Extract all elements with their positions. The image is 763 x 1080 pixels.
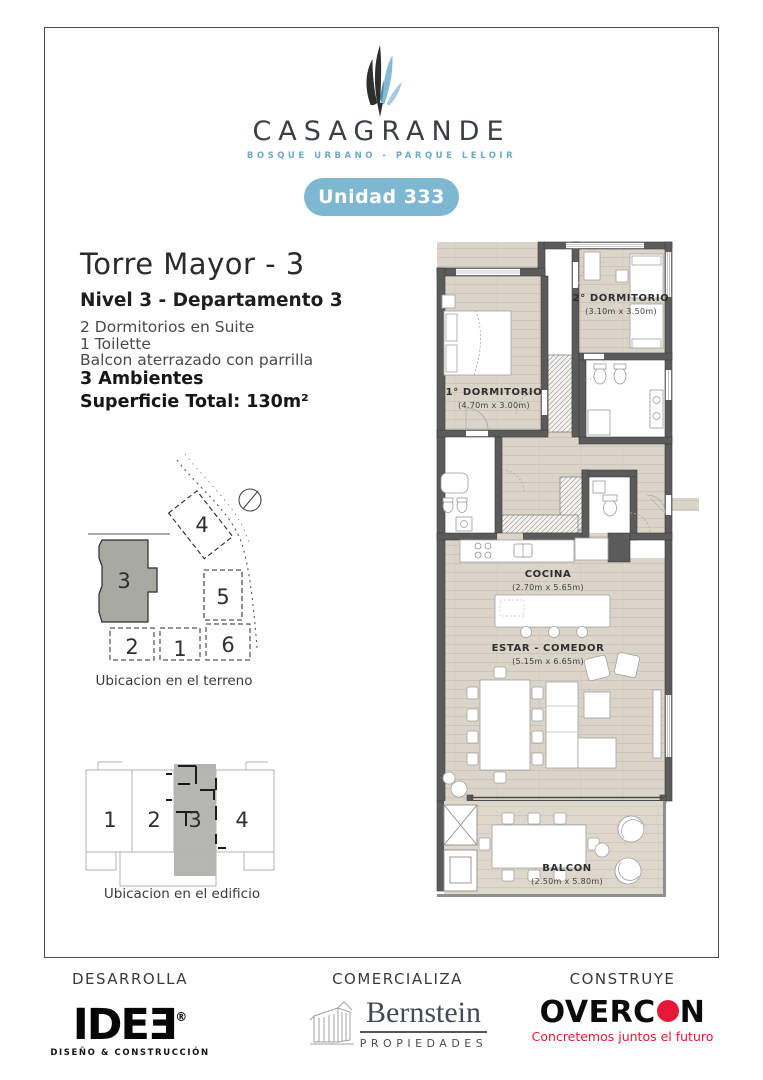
footer-role: CONSTRUYE bbox=[515, 970, 730, 988]
feature-item: 1 Toilette bbox=[80, 336, 313, 353]
building-plan-caption: Ubicacion en el edificio bbox=[104, 886, 260, 902]
building-number: 1 bbox=[173, 637, 186, 661]
room-dims: (4.70m x 3.00m) bbox=[458, 401, 530, 410]
brand-name: CASAGRANDE bbox=[0, 116, 763, 147]
unit-number: 1 bbox=[103, 808, 116, 832]
lounge-chair bbox=[618, 816, 644, 842]
ambientes-label: 3 Ambientes bbox=[80, 369, 204, 389]
dining-table bbox=[480, 680, 530, 770]
page-title: Torre Mayor - 3 bbox=[80, 247, 305, 281]
footer-builder: CONSTRUYE OVERCN Concretemos juntos el f… bbox=[515, 970, 730, 1044]
room-dims: (5.15m x 6.65m) bbox=[512, 657, 584, 666]
unit-number-highlighted: 3 bbox=[188, 808, 201, 832]
room-label: 1° DORMITORIO bbox=[446, 387, 543, 398]
building-number: 3 bbox=[117, 569, 130, 593]
casagrande-tree-logo-icon bbox=[356, 44, 406, 118]
footer-role: DESARROLLA bbox=[40, 970, 220, 988]
idee-logo: IDEƎ® bbox=[40, 997, 220, 1045]
building-plan: 1 2 3 4 Ubicacion en el edificio bbox=[78, 752, 290, 904]
room-label: BALCON bbox=[542, 863, 592, 874]
building-number: 5 bbox=[216, 585, 229, 609]
feature-item: 2 Dormitorios en Suite bbox=[80, 319, 313, 336]
floorplan: 2° DORMITORIO (3.10m x 3.50m) 1° DORMITO… bbox=[434, 240, 734, 912]
unit-number: 2 bbox=[147, 808, 160, 832]
wardrobe bbox=[548, 355, 572, 432]
outdoor-table bbox=[492, 825, 586, 868]
overcon-tagline: Concretemos juntos el futuro bbox=[515, 1029, 730, 1044]
bernstein-logo: Bernstein bbox=[360, 996, 487, 1033]
room-dims: (2.70m x 5.65m) bbox=[512, 583, 584, 592]
page-subtitle: Nivel 3 - Departamento 3 bbox=[80, 290, 343, 311]
footer-role: COMERCIALIZA bbox=[285, 970, 510, 988]
idee-tagline: DISEÑO & CONSTRUCCIÓN bbox=[40, 1048, 220, 1058]
overcon-red-dot-icon bbox=[657, 1000, 679, 1022]
room-dims: (3.10m x 3.50m) bbox=[585, 307, 657, 316]
overcon-logo: OVERCN bbox=[515, 998, 730, 1028]
superficie-label: Superficie Total: 130m² bbox=[80, 392, 309, 412]
coffee-table bbox=[584, 692, 610, 718]
sofa bbox=[546, 682, 578, 768]
tv-unit bbox=[653, 690, 661, 758]
brochure-page: CASAGRANDE BOSQUE URBANO - PARQUE LELOIR… bbox=[0, 0, 763, 1080]
lounge-chair bbox=[615, 858, 641, 884]
unit-number: 4 bbox=[235, 808, 248, 832]
registered-mark: ® bbox=[175, 1010, 187, 1024]
brand-tagline: BOSQUE URBANO - PARQUE LELOIR bbox=[0, 151, 763, 161]
room-label: ESTAR - COMEDOR bbox=[492, 643, 605, 654]
bernstein-building-icon bbox=[308, 1000, 356, 1046]
room-label: COCINA bbox=[525, 569, 572, 580]
room-dims: (2.50m x 5.80m) bbox=[531, 877, 603, 886]
footer-developer: DESARROLLA IDEƎ® DISEÑO & CONSTRUCCIÓN bbox=[40, 970, 220, 1058]
footer-broker: COMERCIALIZA Bernstein PROPIEDADES bbox=[285, 970, 510, 1050]
building-number: 2 bbox=[125, 635, 138, 659]
unit-badge: Unidad 333 bbox=[304, 178, 459, 216]
building-number: 4 bbox=[195, 513, 208, 537]
feature-list: 2 Dormitorios en Suite 1 Toilette Balcon… bbox=[80, 319, 313, 369]
room-label: 2° DORMITORIO bbox=[573, 293, 670, 304]
feature-item: Balcon aterrazado con parrilla bbox=[80, 352, 313, 369]
wardrobe-corridor bbox=[502, 515, 578, 533]
building-number: 6 bbox=[221, 633, 234, 657]
site-plan: 3 4 5 2 1 6 Ubicacion en el terreno bbox=[82, 452, 272, 692]
bernstein-tagline: PROPIEDADES bbox=[360, 1037, 487, 1050]
site-plan-caption: Ubicacion en el terreno bbox=[96, 673, 253, 689]
